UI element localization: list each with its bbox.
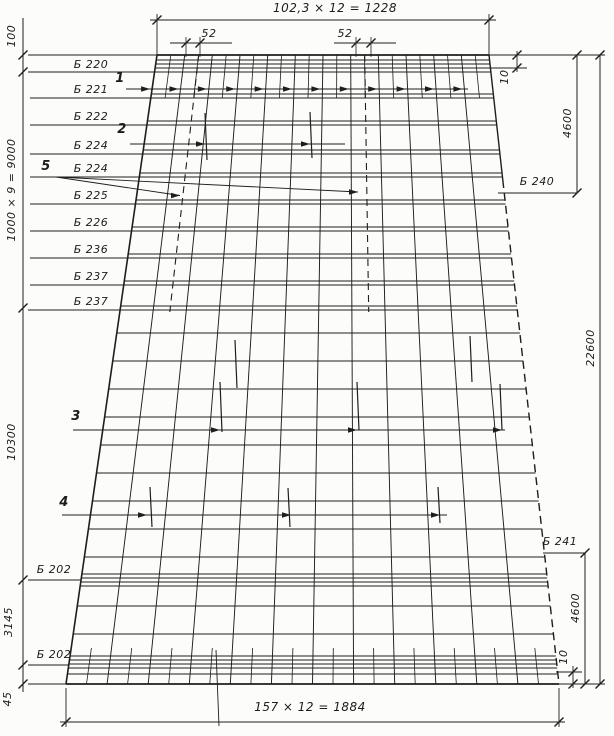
- beam-label-b202-lower: Б 202: [34, 649, 74, 661]
- callout-3: 3: [68, 411, 84, 423]
- dimension-top-total: 102,3 × 12 = 1228: [240, 2, 430, 14]
- beam-label-b240: Б 240: [515, 176, 559, 188]
- dimension-right-22600: 22600: [585, 308, 597, 388]
- beam-label-b225: Б 225: [72, 190, 110, 202]
- dimension-left-3145: 3145: [3, 592, 15, 652]
- dimension-spacing-52-right: 52: [333, 28, 357, 40]
- dimension-left-10300: 10300: [6, 402, 18, 482]
- beam-label-b222: Б 222: [72, 111, 110, 123]
- drawing-sheet: 102,3 × 12 = 1228 52 52 Б 220 Б 221 Б 22…: [0, 0, 614, 736]
- dimension-left-45: 45: [2, 679, 14, 719]
- beam-label-b220: Б 220: [72, 59, 110, 71]
- dimension-left-100: 100: [6, 6, 18, 66]
- beam-label-b237-lower: Б 237: [72, 296, 110, 308]
- dimension-spacing-52-left: 52: [197, 28, 221, 40]
- dimension-left-9000: 1000 × 9 = 9000: [6, 135, 18, 245]
- dimension-bottom-total: 157 × 12 = 1884: [225, 701, 395, 713]
- callout-4: 4: [56, 497, 72, 509]
- beam-label-b224-lower: Б 224: [72, 163, 110, 175]
- callout-2: 2: [114, 124, 130, 136]
- dimension-right-4600-bottom: 4600: [570, 578, 582, 638]
- beam-label-b236: Б 236: [72, 244, 110, 256]
- beam-label-b226: Б 226: [72, 217, 110, 229]
- dimension-right-4600-top: 4600: [562, 93, 574, 153]
- beam-label-b241: Б 241: [540, 536, 580, 548]
- beam-label-b202-upper: Б 202: [34, 564, 74, 576]
- dimension-right-10-bottom: 10: [558, 642, 570, 672]
- dimension-right-10-top: 10: [499, 62, 511, 92]
- beam-label-b221: Б 221: [72, 84, 110, 96]
- callout-5: 5: [38, 161, 54, 173]
- beam-label-b224-upper: Б 224: [72, 140, 110, 152]
- callout-1: 1: [112, 73, 128, 85]
- beam-label-b237-upper: Б 237: [72, 271, 110, 283]
